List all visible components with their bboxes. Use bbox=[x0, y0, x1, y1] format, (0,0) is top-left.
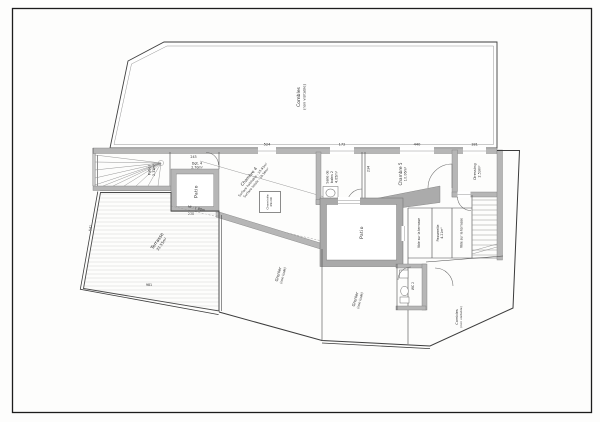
room-note-combles-br: (non visitable) bbox=[459, 306, 463, 328]
wc-sink bbox=[400, 270, 409, 278]
hallway-dgt4: 243 Dgt. 4 2.70m² bbox=[190, 152, 219, 170]
room-label-sdb2-2: bains 2 bbox=[330, 171, 334, 183]
room-patio-center: Patio bbox=[320, 197, 409, 267]
area-passerelle: 4.21m² bbox=[440, 227, 444, 239]
door-arc-landing bbox=[435, 268, 453, 286]
room-label-wc2: WC 2 bbox=[411, 282, 415, 290]
door-arc-chambre5 bbox=[428, 164, 452, 188]
room-label-combles-top: Combles bbox=[296, 86, 302, 107]
room-combles-top: Combles (non visitable) bbox=[110, 42, 497, 200]
dim-440: 440 bbox=[414, 143, 422, 147]
room-label-palier: Palier bbox=[147, 164, 152, 175]
staircase-top-left: Palier 2.31m² bbox=[93, 152, 171, 191]
sloped-wall bbox=[216, 211, 322, 250]
dim-541: 541 bbox=[88, 225, 93, 232]
room-label-patio-center: Patio bbox=[359, 226, 365, 239]
room-combles-br: Combles (non visitable) bbox=[426, 256, 503, 328]
dim-234: 234 bbox=[367, 166, 371, 172]
scanned-floor-plan-page: Combles (non visitable) 524 172 440 181 … bbox=[0, 0, 600, 422]
door-arc-dressing bbox=[458, 197, 472, 211]
dim-524: 524 bbox=[264, 143, 272, 147]
label-vide-left: Vide sur la terrasse bbox=[417, 218, 421, 248]
room-area-sdb2: 4.05m² bbox=[334, 170, 338, 183]
floor-plan-drawing: Combles (non visitable) 524 172 440 181 … bbox=[0, 0, 600, 422]
room-area-palier: 2.31m² bbox=[152, 163, 156, 176]
dim-181: 181 bbox=[471, 143, 478, 147]
room-label-patio-left: Patio bbox=[194, 185, 200, 198]
dim-243: 243 bbox=[190, 155, 196, 159]
label-vide-right: Vide sur la terrasse bbox=[460, 218, 464, 248]
room-wc2: WC 2 bbox=[396, 264, 453, 310]
room-area-dressing: 2.53m² bbox=[477, 165, 481, 178]
chimney-size: 49x49 bbox=[269, 197, 273, 207]
room-area-chambre5: 10.06m² bbox=[404, 166, 408, 181]
room-label-dressing: Dressing bbox=[472, 163, 477, 180]
room-note-combles-top: (non visitable) bbox=[303, 84, 307, 110]
dim-172: 172 bbox=[339, 143, 346, 147]
room-label-chambre5: Chambre 5 bbox=[398, 162, 403, 185]
staircase-right bbox=[472, 195, 497, 258]
dim-981: 981 bbox=[146, 283, 152, 287]
wc-toilet bbox=[401, 286, 409, 296]
